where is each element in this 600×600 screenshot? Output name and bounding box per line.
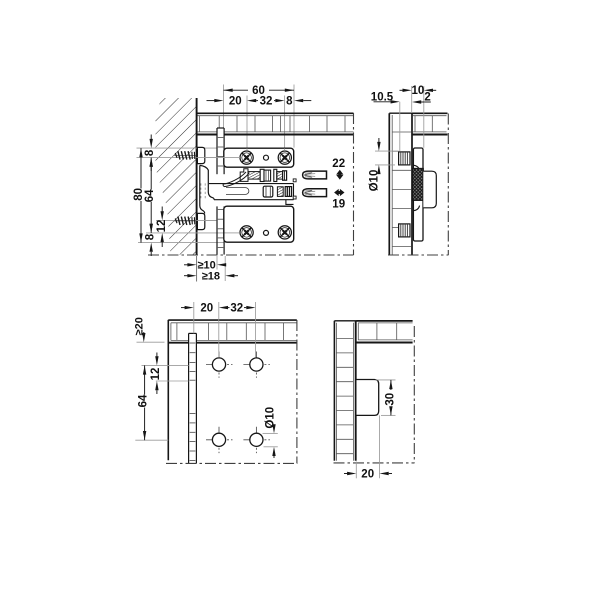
svg-text:10: 10 [412,85,425,97]
svg-text:64: 64 [138,394,150,407]
svg-text:8: 8 [144,149,156,156]
svg-text:64: 64 [144,189,156,202]
svg-text:≥18: ≥18 [202,271,220,283]
svg-text:30: 30 [385,393,397,406]
svg-text:19: 19 [332,199,345,211]
svg-text:22: 22 [332,158,345,170]
svg-text:12: 12 [156,220,168,233]
svg-text:20: 20 [229,96,242,108]
svg-text:20: 20 [200,303,213,315]
svg-text:32: 32 [260,96,273,108]
svg-text:2: 2 [424,91,430,103]
svg-text:12: 12 [150,368,162,381]
svg-text:Ø10: Ø10 [368,170,380,192]
svg-text:20: 20 [361,468,374,480]
svg-text:8: 8 [145,233,157,240]
svg-text:8: 8 [286,96,293,108]
svg-text:≥20: ≥20 [133,317,145,335]
svg-text:32: 32 [230,303,243,315]
svg-text:Ø10: Ø10 [264,407,276,429]
